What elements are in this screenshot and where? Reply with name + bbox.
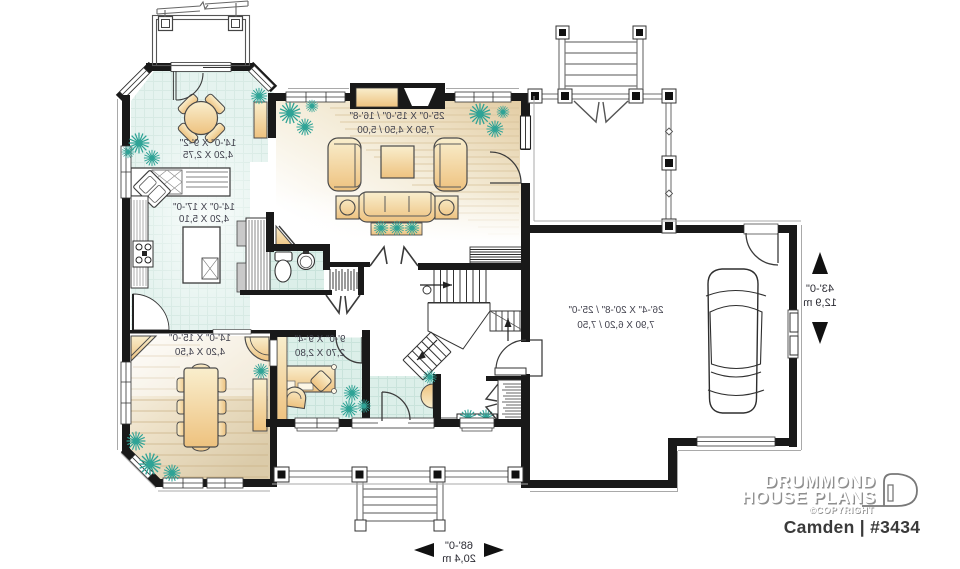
svg-text:14'-0" X 17'-0": 14'-0" X 17'-0" [173, 202, 235, 213]
svg-text:25'-0" X 15'-0" / 16'-8": 25'-0" X 15'-0" / 16'-8" [349, 111, 445, 122]
svg-text:43'-0": 43'-0" [806, 283, 834, 295]
svg-text:14'-0" X 15'-0": 14'-0" X 15'-0" [169, 333, 231, 344]
svg-text:Camden | #3434: Camden | #3434 [784, 517, 921, 537]
svg-text:7,50 X 4,50 / 5,00: 7,50 X 4,50 / 5,00 [357, 125, 435, 136]
svg-text:4,20 X 4,50: 4,20 X 4,50 [174, 347, 225, 358]
svg-text:14'-0" X 9'-2": 14'-0" X 9'-2" [179, 138, 236, 149]
svg-text:12,9 m: 12,9 m [803, 297, 837, 309]
svg-text:2,70 X 2,80: 2,70 X 2,80 [294, 348, 345, 359]
svg-text:20,4 m: 20,4 m [442, 553, 476, 565]
svg-text:7,90 X 6,20 / 7,50: 7,90 X 6,20 / 7,50 [577, 320, 655, 331]
svg-text:26'-4" X 20'-8" / 25'-0": 26'-4" X 20'-8" / 25'-0" [568, 305, 664, 316]
svg-text:HOUSE PLANS: HOUSE PLANS [742, 487, 876, 507]
svg-text:68'-0": 68'-0" [445, 540, 473, 552]
svg-text:9'-0" X 9'-4": 9'-0" X 9'-4" [294, 334, 346, 345]
svg-text:4,20 X 5,10: 4,20 X 5,10 [178, 214, 229, 225]
svg-text:4,20 X 2,75: 4,20 X 2,75 [182, 150, 233, 161]
